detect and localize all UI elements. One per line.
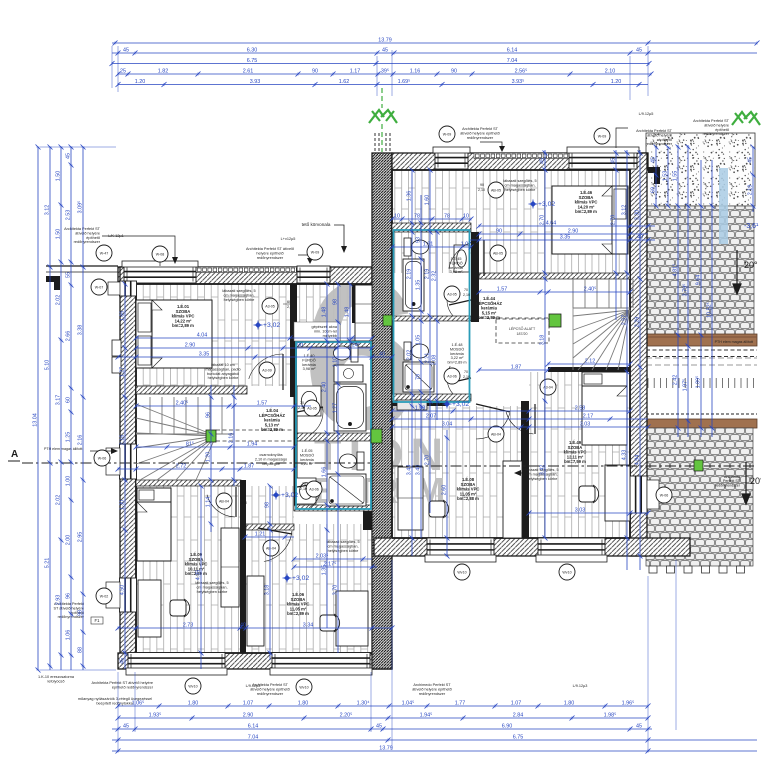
svg-text:1.94⁵: 1.94⁵ <box>420 713 433 719</box>
svg-text:1.80: 1.80 <box>298 701 309 707</box>
svg-text:W-02: W-02 <box>100 594 109 598</box>
svg-text:A3-06: A3-06 <box>309 487 319 491</box>
svg-text:2,10: 2,10 <box>463 293 470 297</box>
svg-text:W-09: W-09 <box>311 250 320 254</box>
svg-text:2.16: 2.16 <box>78 435 84 446</box>
svg-text:69: 69 <box>651 187 657 193</box>
svg-text:96: 96 <box>66 593 72 599</box>
svg-text:2.19: 2.19 <box>407 269 413 280</box>
svg-text:2.93: 2.93 <box>56 595 62 606</box>
svg-text:+3,02: +3,02 <box>538 201 555 208</box>
svg-text:6.75: 6.75 <box>513 735 524 741</box>
svg-text:2.10: 2.10 <box>605 69 616 75</box>
svg-text:7.04: 7.04 <box>507 58 518 64</box>
svg-text:lábazati szegőlés, 5cm magassá: lábazati szegőlés, 5cm magasságban,helyi… <box>222 289 255 302</box>
svg-text:AB-05: AB-05 <box>491 188 501 192</box>
svg-text:1.94: 1.94 <box>247 442 258 448</box>
svg-text:A3-09: A3-09 <box>262 368 272 372</box>
svg-text:+3,02: +3,02 <box>281 492 298 499</box>
svg-text:78: 78 <box>414 214 420 220</box>
svg-text:3.79⁵: 3.79⁵ <box>683 284 689 297</box>
svg-text:2.02: 2.02 <box>407 350 413 361</box>
svg-text:W-06: W-06 <box>98 456 107 460</box>
svg-text:3.35: 3.35 <box>199 352 210 358</box>
svg-text:1.50: 1.50 <box>56 229 62 240</box>
svg-text:1.20: 1.20 <box>611 79 622 85</box>
svg-text:2.90: 2.90 <box>243 713 254 719</box>
svg-text:6.75: 6.75 <box>247 58 258 64</box>
svg-text:3.30: 3.30 <box>635 210 641 221</box>
svg-text:AB-04: AB-04 <box>491 432 501 436</box>
svg-text:1.20: 1.20 <box>135 79 146 85</box>
svg-text:LÉPCSŐ ALATT: LÉPCSŐ ALATT <box>509 326 536 331</box>
svg-text:1.20: 1.20 <box>206 452 212 463</box>
svg-text:1.50: 1.50 <box>56 171 62 182</box>
svg-text:3.18: 3.18 <box>265 585 271 596</box>
svg-text:W-07: W-07 <box>95 285 104 289</box>
svg-text:-3,6¹: -3,6¹ <box>744 223 759 230</box>
svg-text:13.04: 13.04 <box>33 413 39 427</box>
svg-text:1.17: 1.17 <box>350 69 361 75</box>
svg-text:90: 90 <box>451 69 457 75</box>
svg-text:A3-06: A3-06 <box>447 374 457 378</box>
svg-text:1.91: 1.91 <box>423 242 434 248</box>
svg-text:3.17: 3.17 <box>56 395 62 406</box>
svg-text:98: 98 <box>265 502 271 508</box>
svg-text:2.00: 2.00 <box>66 535 72 546</box>
svg-text:2.02: 2.02 <box>56 495 62 506</box>
svg-text:96: 96 <box>206 412 212 418</box>
svg-text:2.70: 2.70 <box>425 455 431 466</box>
svg-text:70: 70 <box>464 288 468 292</box>
svg-text:2.90: 2.90 <box>185 343 196 349</box>
svg-text:2,10: 2,10 <box>300 487 307 491</box>
svg-text:45: 45 <box>636 724 642 730</box>
svg-text:1.02: 1.02 <box>461 242 472 248</box>
svg-text:1.14: 1.14 <box>206 497 212 508</box>
svg-text:1.30⁴: 1.30⁴ <box>357 701 370 707</box>
svg-text:1.69⁵: 1.69⁵ <box>398 79 411 85</box>
svg-text:A: A <box>11 449 18 460</box>
svg-text:2.57: 2.57 <box>622 315 628 326</box>
svg-text:70: 70 <box>300 401 304 405</box>
svg-text:2.40⁵: 2.40⁵ <box>584 287 597 293</box>
svg-text:2.58: 2.58 <box>575 406 586 412</box>
svg-text:3.93: 3.93 <box>250 79 261 85</box>
svg-text:2,10: 2,10 <box>287 305 294 309</box>
svg-text:1.57: 1.57 <box>257 401 268 407</box>
svg-text:Wv10: Wv10 <box>188 684 197 688</box>
svg-text:2.03⁵: 2.03⁵ <box>316 554 329 560</box>
svg-text:2,10: 2,10 <box>240 501 247 505</box>
svg-text:1.25: 1.25 <box>66 432 72 443</box>
svg-text:L+v12µ5: L+v12µ5 <box>281 237 296 241</box>
svg-text:78: 78 <box>444 214 450 220</box>
svg-text:2.72: 2.72 <box>176 464 187 470</box>
svg-text:60: 60 <box>287 300 291 304</box>
svg-text:1.93⁵: 1.93⁵ <box>149 713 162 719</box>
svg-text:2.70: 2.70 <box>540 215 546 226</box>
svg-text:1.80: 1.80 <box>188 701 199 707</box>
svg-text:1.87: 1.87 <box>511 365 522 371</box>
svg-text:1.53: 1.53 <box>663 171 669 182</box>
svg-text:93: 93 <box>416 237 422 243</box>
svg-text:1.80: 1.80 <box>564 701 575 707</box>
svg-text:Wv10: Wv10 <box>457 570 466 574</box>
svg-text:13.79: 13.79 <box>378 38 392 44</box>
svg-text:1.27: 1.27 <box>120 367 126 378</box>
svg-text:45: 45 <box>66 153 72 159</box>
svg-text:A3-05: A3-05 <box>265 304 275 308</box>
svg-text:45: 45 <box>376 724 382 730</box>
svg-text:1.21: 1.21 <box>255 532 266 538</box>
svg-text:90: 90 <box>312 69 318 75</box>
svg-text:4.64: 4.64 <box>546 221 557 227</box>
svg-text:2.21: 2.21 <box>425 353 431 364</box>
svg-text:2,10: 2,10 <box>298 406 305 410</box>
svg-text:3.18: 3.18 <box>540 335 546 346</box>
svg-text:6.30: 6.30 <box>247 48 258 54</box>
svg-text:2.95: 2.95 <box>78 532 84 543</box>
svg-text:10: 10 <box>394 214 400 220</box>
svg-text:10.52⁵: 10.52⁵ <box>707 302 713 318</box>
svg-text:2,10: 2,10 <box>478 188 485 192</box>
svg-text:60: 60 <box>240 496 244 500</box>
svg-text:3.09⁵: 3.09⁵ <box>78 201 84 214</box>
svg-text:3.40: 3.40 <box>416 465 422 476</box>
svg-text:1.66: 1.66 <box>120 311 126 322</box>
svg-text:PTH elem magas állított: PTH elem magas állított <box>715 340 753 344</box>
svg-text:lábazati szegőlés, 5cm magassá: lábazati szegőlés, 5cm magasságban,helyi… <box>326 540 359 553</box>
svg-text:1.35: 1.35 <box>416 280 422 291</box>
svg-text:1.89⁵: 1.89⁵ <box>696 376 702 389</box>
svg-text:1.07: 1.07 <box>511 701 522 707</box>
svg-text:1.06: 1.06 <box>66 630 72 641</box>
svg-text:24⁵: 24⁵ <box>352 343 360 349</box>
svg-text:2.53: 2.53 <box>66 210 72 221</box>
svg-text:2.40: 2.40 <box>322 382 328 393</box>
svg-text:1.27: 1.27 <box>333 403 339 414</box>
svg-text:70: 70 <box>464 370 468 374</box>
svg-text:90: 90 <box>496 229 502 235</box>
svg-text:3.35: 3.35 <box>560 235 571 241</box>
svg-text:2.29: 2.29 <box>635 317 641 328</box>
svg-text:1.60: 1.60 <box>425 195 431 206</box>
svg-text:1.35: 1.35 <box>322 565 328 576</box>
svg-text:1.96⁵: 1.96⁵ <box>622 701 635 707</box>
svg-text:70: 70 <box>302 482 306 486</box>
svg-text:78: 78 <box>416 374 422 380</box>
svg-text:2.16: 2.16 <box>120 435 126 446</box>
svg-text:81⁵: 81⁵ <box>186 442 194 448</box>
svg-text:40: 40 <box>379 352 385 358</box>
svg-text:L/9.12µ3: L/9.12µ3 <box>246 684 261 688</box>
svg-text:2.70: 2.70 <box>611 215 617 226</box>
svg-text:4.35: 4.35 <box>196 570 202 581</box>
svg-text:45: 45 <box>382 48 388 54</box>
svg-text:20°: 20° <box>750 476 761 486</box>
svg-text:55: 55 <box>66 272 72 278</box>
svg-text:W-09: W-09 <box>443 132 452 136</box>
svg-text:2.17: 2.17 <box>583 414 594 420</box>
svg-text:4.81⁵: 4.81⁵ <box>673 264 679 277</box>
svg-text:39⁵: 39⁵ <box>381 69 389 75</box>
svg-text:1.57: 1.57 <box>497 287 508 293</box>
svg-text:2.66: 2.66 <box>66 331 72 342</box>
svg-text:1.48: 1.48 <box>345 307 351 318</box>
svg-text:4.33: 4.33 <box>622 450 628 461</box>
svg-text:Wv10: Wv10 <box>562 570 571 574</box>
svg-text:W-08: W-08 <box>156 252 165 256</box>
svg-text:3.70: 3.70 <box>333 585 339 596</box>
svg-text:5.10: 5.10 <box>45 360 51 371</box>
svg-text:45: 45 <box>540 158 546 164</box>
svg-text:2.32: 2.32 <box>432 271 438 282</box>
svg-text:9.64: 9.64 <box>696 275 702 286</box>
svg-text:2.16: 2.16 <box>229 433 235 444</box>
svg-text:4.04: 4.04 <box>197 333 208 339</box>
svg-text:3.03: 3.03 <box>580 422 591 428</box>
svg-text:7.04: 7.04 <box>248 735 259 741</box>
svg-text:L/9.12µ5: L/9.12µ5 <box>639 112 654 116</box>
svg-text:6.14: 6.14 <box>248 724 259 730</box>
svg-text:1.98⁵: 1.98⁵ <box>604 713 617 719</box>
svg-text:2.19: 2.19 <box>425 269 431 280</box>
svg-text:1.55: 1.55 <box>673 171 679 182</box>
svg-text:1.07: 1.07 <box>243 701 254 707</box>
svg-text:6.90: 6.90 <box>502 724 513 730</box>
svg-text:Wv10: Wv10 <box>299 685 308 689</box>
svg-text:4.94: 4.94 <box>635 455 641 466</box>
svg-text:90: 90 <box>480 183 484 187</box>
svg-text:4.50: 4.50 <box>120 585 126 596</box>
svg-text:187/20: 187/20 <box>517 332 528 336</box>
svg-text:1.82: 1.82 <box>158 69 169 75</box>
svg-text:3.42: 3.42 <box>540 465 546 476</box>
svg-text:1.97⁵: 1.97⁵ <box>683 379 689 392</box>
svg-text:2.40⁵: 2.40⁵ <box>176 401 189 407</box>
svg-text:1.87: 1.87 <box>244 464 255 470</box>
svg-text:2.42: 2.42 <box>673 375 679 386</box>
svg-text:45: 45 <box>636 48 642 54</box>
svg-text:88: 88 <box>78 647 84 653</box>
svg-text:3.44: 3.44 <box>407 465 413 476</box>
svg-text:2.08: 2.08 <box>432 355 438 366</box>
svg-text:1.16: 1.16 <box>410 69 421 75</box>
svg-text:1.48: 1.48 <box>322 307 328 318</box>
svg-text:W-47: W-47 <box>100 251 109 255</box>
svg-text:5.21: 5.21 <box>45 558 51 569</box>
svg-text:2.19: 2.19 <box>748 185 754 196</box>
svg-text:25: 25 <box>120 69 126 75</box>
svg-text:45: 45 <box>120 658 126 664</box>
svg-text:W-09: W-09 <box>598 134 607 138</box>
svg-text:lábazati szegőlés, 5cm magassá: lábazati szegőlés, 5cm magasságban,helyi… <box>503 179 536 192</box>
svg-text:1.00: 1.00 <box>66 476 72 487</box>
svg-text:tető körvonala: tető körvonala <box>302 222 331 227</box>
svg-text:A3-05: A3-05 <box>447 292 457 296</box>
svg-text:L/K-12µ1: L/K-12µ1 <box>108 234 124 238</box>
svg-text:60: 60 <box>66 397 72 403</box>
svg-text:13.79: 13.79 <box>379 746 393 752</box>
svg-text:1.77: 1.77 <box>455 701 466 707</box>
svg-text:2.73: 2.73 <box>183 623 194 629</box>
svg-text:2,10: 2,10 <box>463 375 470 379</box>
svg-text:45: 45 <box>611 158 617 164</box>
svg-text:45: 45 <box>123 48 129 54</box>
svg-text:1.É.05MOSDÓkerámia3,20 m²: 1.É.05MOSDÓkerámia3,20 m² <box>300 448 315 466</box>
svg-text:F1: F1 <box>95 618 101 623</box>
svg-text:1.30: 1.30 <box>120 500 126 511</box>
svg-text:AB-05: AB-05 <box>493 251 503 255</box>
svg-text:3.38: 3.38 <box>78 325 84 336</box>
svg-text:3.04: 3.04 <box>442 422 453 428</box>
svg-text:1.É.45FÜRDŐkerámia3,98 m²: 1.É.45FÜRDŐkerámia3,98 m² <box>449 256 463 274</box>
svg-text:45: 45 <box>748 157 754 163</box>
svg-text:2.02: 2.02 <box>56 295 62 306</box>
svg-text:2.61: 2.61 <box>243 69 254 75</box>
svg-text:3.12: 3.12 <box>622 205 628 216</box>
svg-text:45: 45 <box>123 724 129 730</box>
svg-text:1.10: 1.10 <box>333 357 339 368</box>
svg-text:40: 40 <box>240 623 246 629</box>
svg-text:lábazati szegőlés, 5cm magassá: lábazati szegőlés, 5cm magasságban,helyi… <box>195 581 228 594</box>
svg-text:20°: 20° <box>744 260 758 270</box>
svg-text:1.04⁵: 1.04⁵ <box>402 701 415 707</box>
svg-text:+3,02: +3,02 <box>452 401 469 408</box>
svg-text:1.58: 1.58 <box>415 406 426 412</box>
svg-text:1.66: 1.66 <box>322 467 328 478</box>
svg-text:90: 90 <box>297 343 303 349</box>
svg-text:2.12: 2.12 <box>585 359 596 365</box>
svg-text:1.62: 1.62 <box>339 79 350 85</box>
svg-text:+3,02: +3,02 <box>263 322 280 329</box>
svg-text:1.36: 1.36 <box>407 191 413 202</box>
svg-text:6.14: 6.14 <box>507 48 518 54</box>
svg-text:2.60: 2.60 <box>442 485 448 496</box>
svg-text:1.05: 1.05 <box>416 335 422 346</box>
svg-text:3.03: 3.03 <box>575 508 586 514</box>
svg-text:AB-04: AB-04 <box>219 499 229 503</box>
svg-text:1.06⁵: 1.06⁵ <box>132 701 145 707</box>
svg-text:2.84: 2.84 <box>513 713 524 719</box>
svg-text:L/9.12µ3: L/9.12µ3 <box>573 684 588 688</box>
svg-text:+3,02: +3,02 <box>292 575 309 582</box>
svg-text:A3-05: A3-05 <box>307 406 317 410</box>
svg-text:98: 98 <box>333 299 339 305</box>
svg-text:3.93⁵: 3.93⁵ <box>512 79 525 85</box>
svg-text:2.20⁵: 2.20⁵ <box>340 713 353 719</box>
svg-text:98: 98 <box>78 610 84 616</box>
svg-text:3.34: 3.34 <box>303 623 314 629</box>
svg-text:2.56⁵: 2.56⁵ <box>515 69 528 75</box>
svg-text:10: 10 <box>463 214 469 220</box>
svg-text:1.É.40FÜRDŐkerámia3,98 m²: 1.É.40FÜRDŐkerámia3,98 m² <box>302 353 316 371</box>
svg-text:AB-04: AB-04 <box>266 546 276 550</box>
svg-text:3.12: 3.12 <box>45 205 51 216</box>
svg-text:2.07: 2.07 <box>426 414 437 420</box>
svg-text:45: 45 <box>651 157 657 163</box>
svg-text:W-06: W-06 <box>660 493 669 497</box>
